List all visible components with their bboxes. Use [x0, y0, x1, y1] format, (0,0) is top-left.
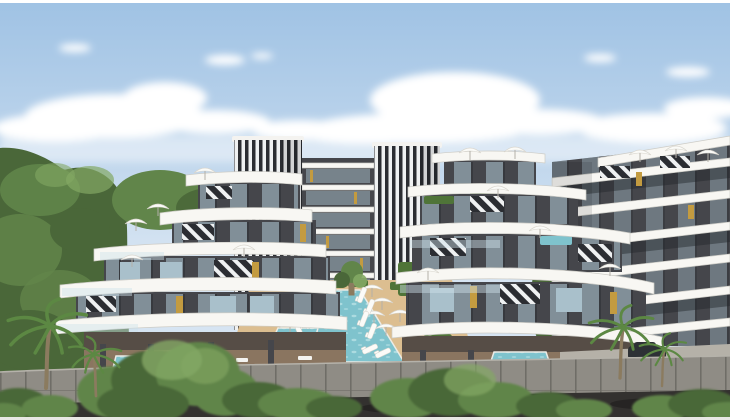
architectural-rendering: Architectural rendering of a modern resi… [0, 0, 730, 420]
diagonal-stripe-panel [86, 296, 116, 312]
diagonal-stripe-panel [206, 186, 232, 199]
glass-railing [58, 324, 138, 332]
gold-window-accent [354, 192, 357, 204]
terrace-furniture [298, 356, 312, 360]
rooftop-plunge-pool [540, 236, 572, 245]
gold-window-accent [610, 292, 617, 314]
green-roof [424, 196, 454, 204]
diagonal-stripe-panel [500, 284, 540, 304]
diagonal-stripe-panel [470, 196, 504, 212]
diagonal-stripe-panel [578, 244, 612, 262]
terrace-furniture [236, 358, 248, 362]
diagonal-stripe-panel [660, 156, 690, 168]
diagonal-stripe-panel [182, 224, 214, 240]
glass-railing [400, 285, 500, 293]
glass-railing [410, 240, 500, 248]
diagonal-stripe-panel [600, 166, 630, 178]
diagonal-stripe-panel [214, 260, 254, 280]
rendering-canvas: Architectural rendering of a modern resi… [0, 0, 730, 420]
glass-railing [62, 288, 132, 296]
gold-window-accent [310, 170, 313, 182]
gold-window-accent [688, 205, 694, 219]
gold-window-accent [326, 236, 329, 248]
gold-window-accent [300, 224, 306, 242]
top-border-strip [0, 0, 730, 3]
gold-window-accent [636, 172, 642, 186]
